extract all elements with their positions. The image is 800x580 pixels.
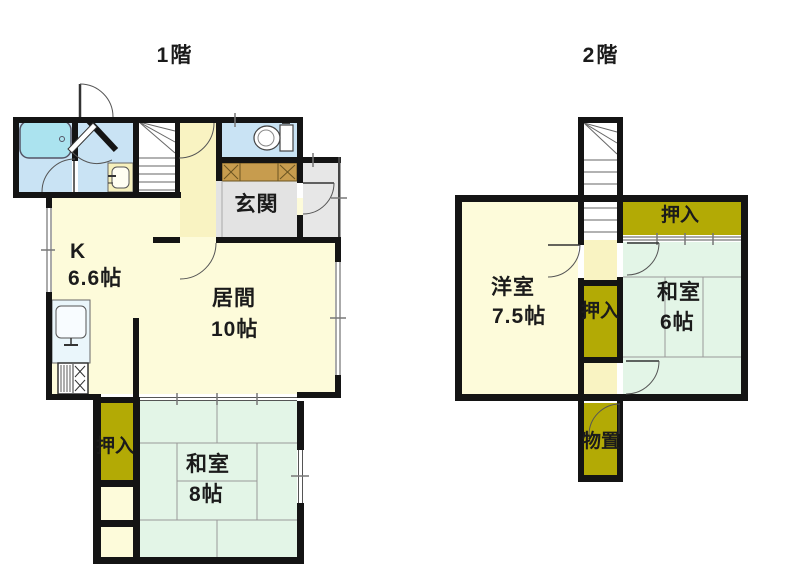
washitsu8-floor: [140, 401, 297, 557]
landing1-floor: [584, 240, 617, 280]
kitchen-sink-icon: [52, 300, 90, 363]
room-size-washitsu6: 6帖: [660, 312, 695, 333]
room-label-western: 洋室: [491, 277, 535, 298]
room-label-storage: 物置: [582, 432, 620, 451]
room-label-living: 居間: [212, 288, 256, 309]
porch-floor: [303, 163, 338, 237]
shoe-cabinet-icon: [222, 163, 297, 181]
room-label-kitchen: K: [70, 241, 86, 262]
back-door: [80, 84, 113, 117]
room-label-closet-2f-center: 押入: [581, 302, 619, 321]
hallway-floor: [180, 123, 216, 237]
landing2-floor: [584, 363, 617, 394]
floor1-title: 1階: [140, 45, 210, 66]
room-label-washitsu6: 和室: [657, 282, 701, 303]
washbasin-icon: [108, 163, 133, 192]
room-label-closet-1f: 押入: [96, 437, 134, 456]
room-label-closet-2f-top: 押入: [661, 206, 699, 225]
room-size-kitchen: 6.6帖: [68, 268, 122, 289]
small-bay-1: [101, 487, 133, 520]
room-size-washitsu8: 8帖: [189, 484, 224, 505]
room-label-entrance: 玄関: [216, 194, 297, 215]
floor-plan: 1階 2階 K 6.6帖 居間 10帖 玄関 押入 和室 8帖 洋室 7.5帖 …: [0, 0, 800, 580]
stove-icon: [58, 363, 88, 394]
floor2-title: 2階: [566, 45, 636, 66]
bathtub-icon: [20, 121, 71, 158]
room-size-living: 10帖: [211, 319, 258, 340]
porch-outer-edge: [338, 157, 341, 237]
small-bay-2: [101, 527, 133, 557]
room-label-washitsu8: 和室: [186, 454, 230, 475]
room-size-western: 7.5帖: [492, 306, 546, 327]
